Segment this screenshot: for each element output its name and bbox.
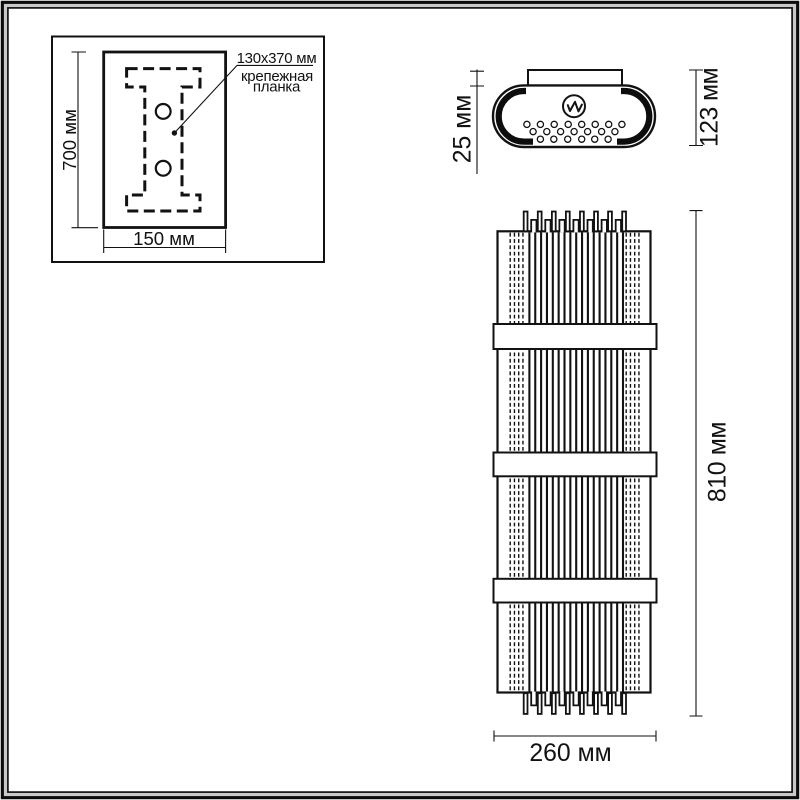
svg-text:700 мм: 700 мм xyxy=(59,109,80,171)
svg-text:150 мм: 150 мм xyxy=(133,228,195,249)
svg-text:130x370 мм: 130x370 мм xyxy=(237,50,317,67)
svg-text:25 мм: 25 мм xyxy=(449,95,476,164)
svg-text:260 мм: 260 мм xyxy=(529,740,611,767)
svg-text:123 мм: 123 мм xyxy=(697,68,724,147)
svg-text:810 мм: 810 мм xyxy=(705,422,732,502)
svg-text:планка: планка xyxy=(253,79,301,96)
